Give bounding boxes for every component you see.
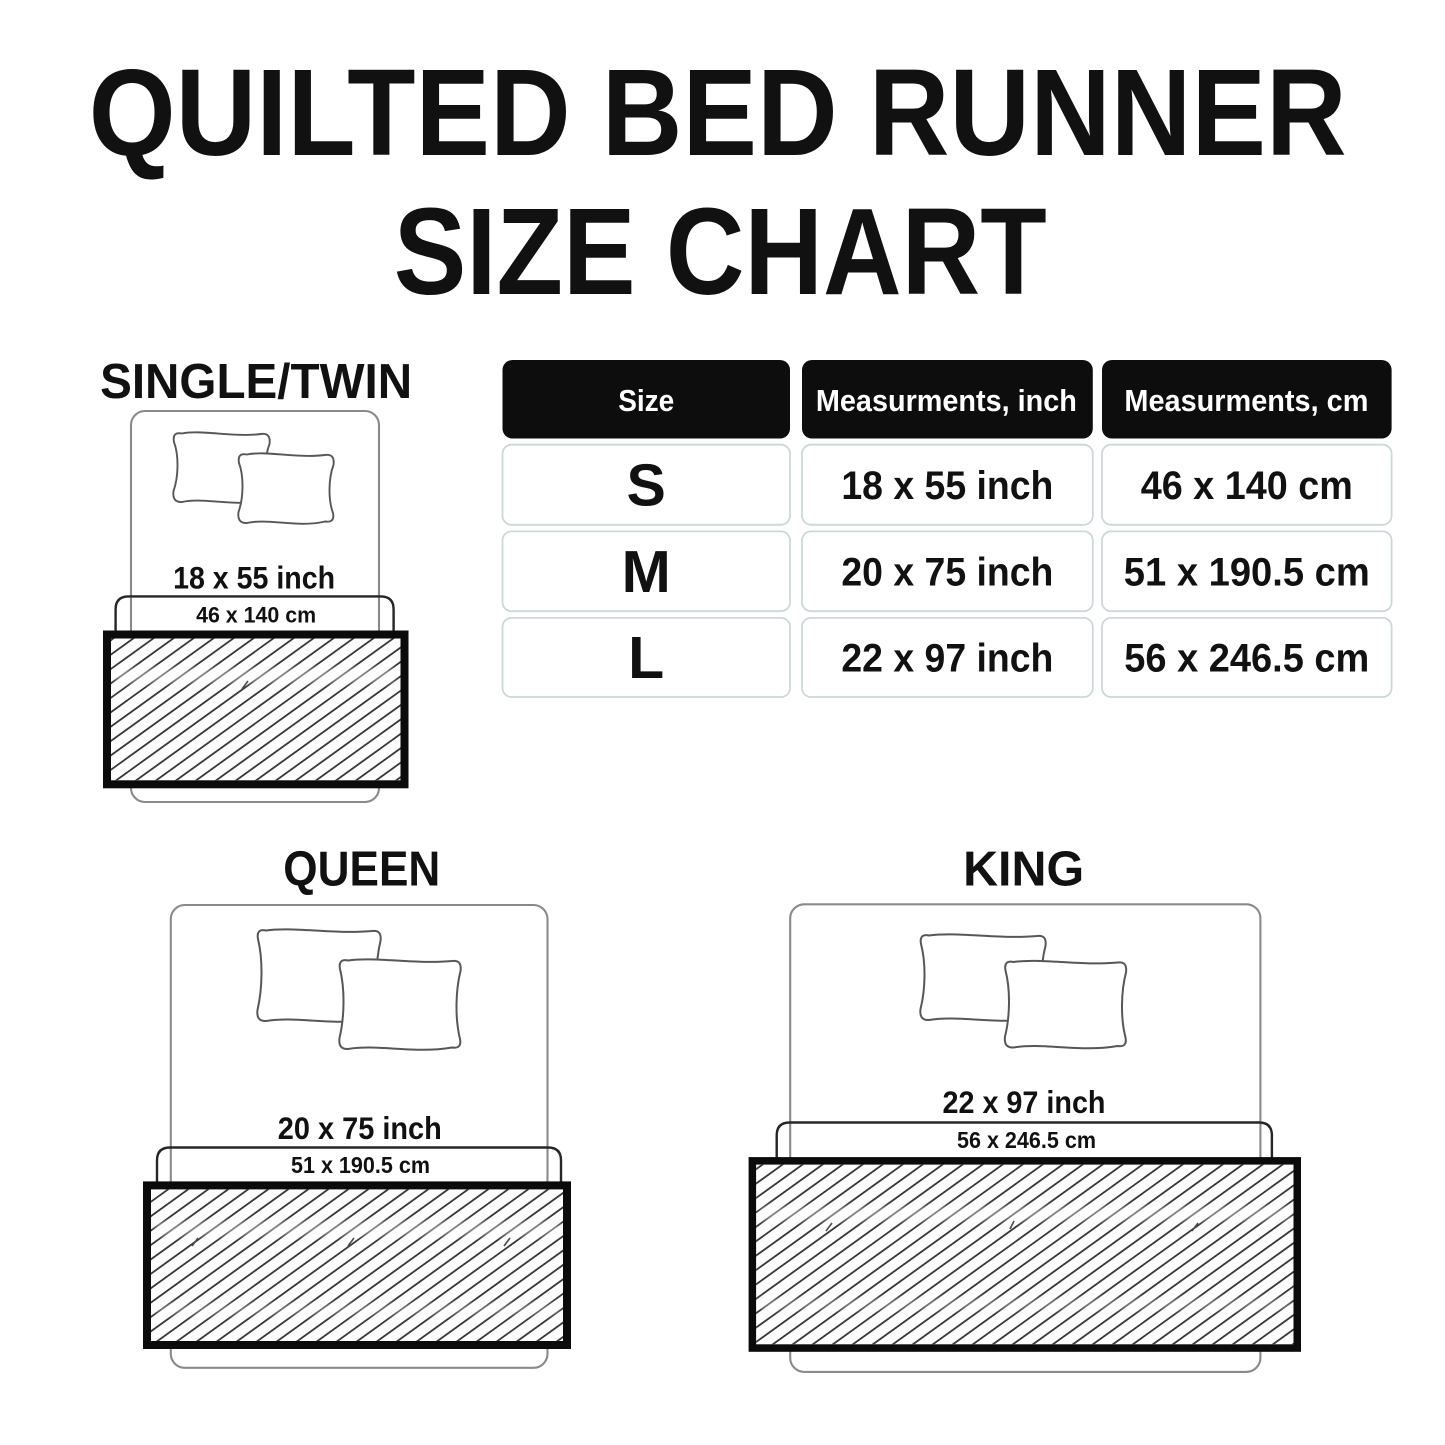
svg-text:M: M [622,539,671,605]
svg-text:22 x 97 inch: 22 x 97 inch [841,636,1053,680]
svg-text:Measurments, cm: Measurments, cm [1124,383,1368,418]
svg-text:22 x 97 inch: 22 x 97 inch [943,1084,1106,1120]
svg-text:L: L [628,625,664,691]
svg-text:SINGLE/TWIN: SINGLE/TWIN [100,355,412,409]
svg-text:46 x 140 cm: 46 x 140 cm [196,602,316,627]
svg-text:QUEEN: QUEEN [283,842,440,896]
svg-text:20 x 75 inch: 20 x 75 inch [841,550,1053,594]
svg-text:18 x 55 inch: 18 x 55 inch [173,559,335,595]
svg-text:46 x 140 cm: 46 x 140 cm [1141,464,1353,508]
svg-text:KING: KING [963,842,1084,896]
svg-text:QUILTED BED RUNNER: QUILTED BED RUNNER [89,45,1347,182]
svg-text:S: S [627,452,666,518]
svg-text:Size: Size [618,383,674,418]
svg-text:51 x 190.5 cm: 51 x 190.5 cm [291,1152,430,1178]
svg-text:20 x 75 inch: 20 x 75 inch [278,1110,442,1146]
svg-text:SIZE CHART: SIZE CHART [394,184,1047,321]
svg-text:56 x 246.5 cm: 56 x 246.5 cm [1124,636,1369,680]
svg-text:56 x 246.5 cm: 56 x 246.5 cm [957,1127,1096,1153]
svg-text:Measurments, inch: Measurments, inch [816,383,1077,418]
svg-text:18 x 55 inch: 18 x 55 inch [841,464,1053,508]
svg-text:51 x 190.5 cm: 51 x 190.5 cm [1124,550,1370,594]
